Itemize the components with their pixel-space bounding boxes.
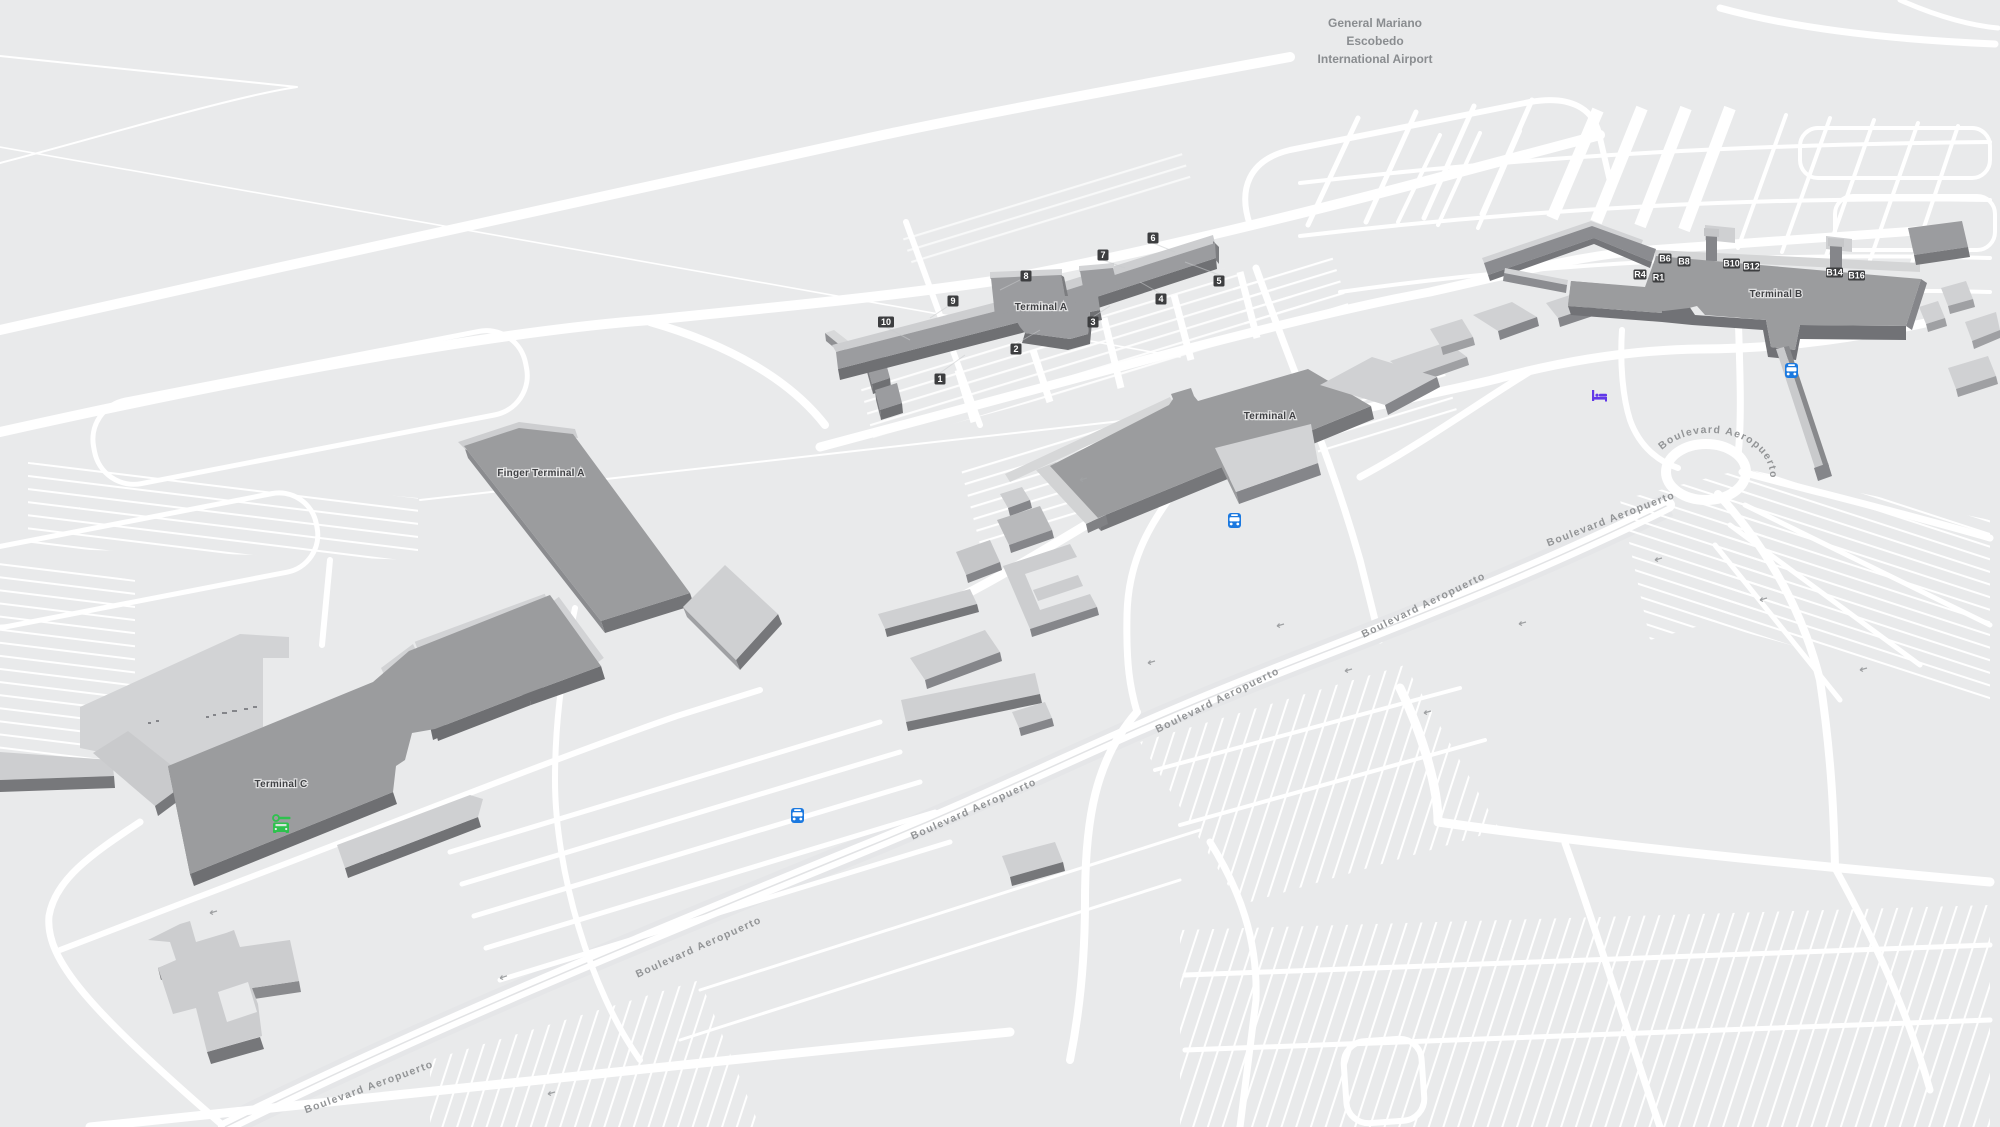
svg-text:Terminal A: Terminal A: [1244, 411, 1297, 422]
svg-text:General Mariano: General Mariano: [1328, 16, 1422, 30]
svg-text:B10: B10: [1723, 259, 1740, 269]
svg-text:8: 8: [1023, 271, 1028, 281]
svg-text:R4: R4: [1634, 270, 1646, 280]
svg-text:International Airport: International Airport: [1318, 52, 1433, 66]
svg-text:B16: B16: [1848, 271, 1865, 281]
svg-text:10: 10: [881, 317, 891, 327]
svg-text:6: 6: [1150, 233, 1155, 243]
svg-text:2: 2: [1013, 344, 1018, 354]
svg-text:Terminal A: Terminal A: [1015, 302, 1068, 313]
svg-text:B6: B6: [1659, 254, 1671, 264]
svg-text:1: 1: [937, 374, 942, 384]
svg-text:5: 5: [1216, 276, 1221, 286]
svg-text:Finger Terminal A: Finger Terminal A: [497, 468, 584, 479]
svg-text:B14: B14: [1826, 268, 1843, 278]
svg-text:3: 3: [1090, 317, 1095, 327]
svg-text:9: 9: [950, 296, 955, 306]
svg-text:Escobedo: Escobedo: [1346, 34, 1403, 48]
svg-text:B12: B12: [1743, 262, 1760, 272]
svg-text:B8: B8: [1678, 257, 1690, 267]
svg-text:7: 7: [1100, 250, 1105, 260]
svg-text:Terminal C: Terminal C: [255, 779, 308, 790]
svg-text:Terminal B: Terminal B: [1750, 289, 1803, 300]
svg-text:4: 4: [1158, 294, 1163, 304]
svg-text:R1: R1: [1653, 273, 1665, 283]
